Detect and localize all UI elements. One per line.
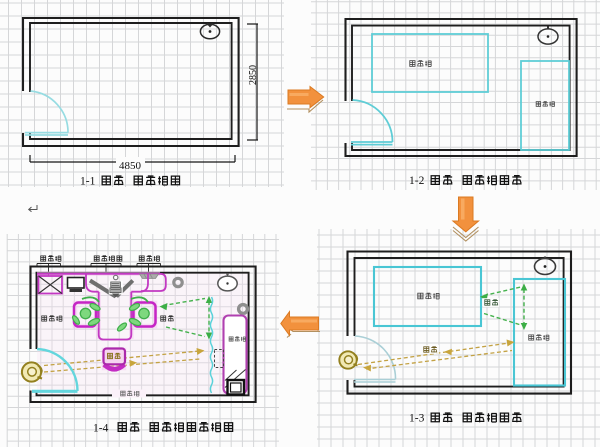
svg-text:1-2: 1-2	[409, 175, 425, 187]
svg-text:4850: 4850	[119, 160, 142, 172]
svg-text:1-3: 1-3	[409, 413, 425, 425]
svg-text:1-4: 1-4	[93, 423, 109, 435]
svg-text:2850: 2850	[248, 65, 259, 85]
svg-text:1-1: 1-1	[80, 176, 96, 188]
